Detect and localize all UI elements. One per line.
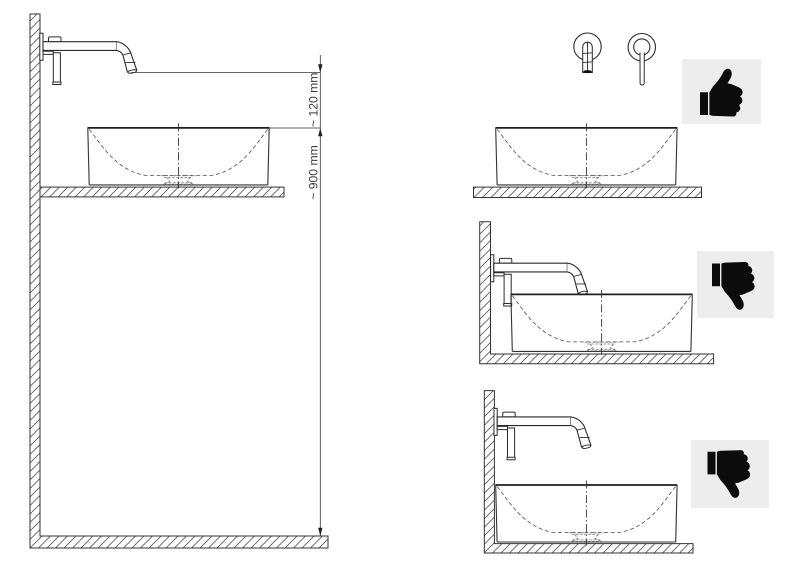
svg-text:~ 120 mm: ~ 120 mm [307,73,321,128]
svg-text:~ 900 mm: ~ 900 mm [307,145,321,200]
